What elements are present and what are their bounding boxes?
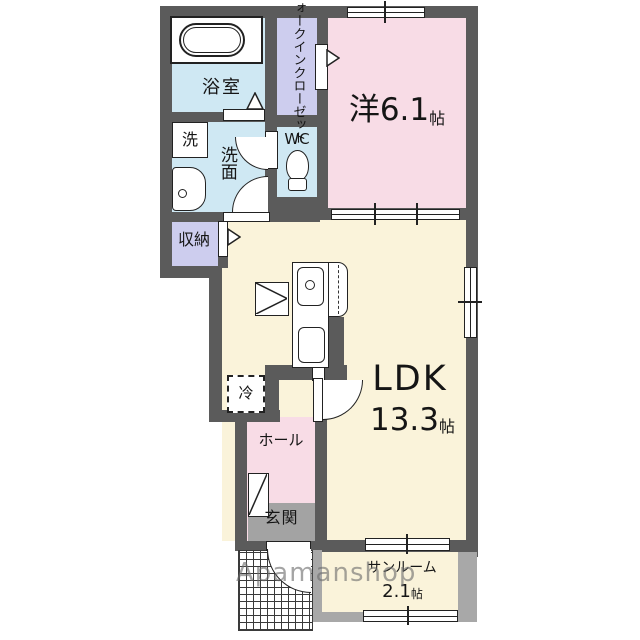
window-tick [384,1,386,23]
bathroom-label: 浴室 [186,76,258,100]
wall-storage-stub [218,256,228,268]
storage-entry-arrow-icon [227,228,241,246]
sliding-door-tick [374,203,376,225]
wall-kitchen-stub [328,317,344,367]
washroom-label: 洗面 [215,140,237,186]
refrigerator-space-icon: 冷 [227,375,265,413]
walk-in-closet-label: ウォークインクローゼット [279,16,317,115]
washbasin-icon [172,167,206,211]
window-tick [406,534,408,554]
wall-fridge-niche-right [265,365,279,416]
wall-wic-western [317,6,328,208]
hall-label: ホール [247,431,315,451]
bathroom-sliding-door [223,109,265,121]
window-icon-sunroom-bottom [363,610,458,622]
wall-hall-right [315,417,327,551]
washroom-door-jamb [223,212,270,222]
toilet-tank-icon [288,178,307,191]
western-room-label: 洋6.1帖 [328,90,466,130]
storage-label: 収納 [170,230,218,250]
sliding-door-tick [416,203,418,225]
dining-table-icon [255,282,289,316]
wall-wc-bottom [270,197,320,222]
ldk-door-leaf [313,378,323,422]
ldk-area-label: 13.3帖 [355,402,470,438]
bathtub-icon [170,16,263,64]
counter-icon [328,262,348,317]
window-tick [458,301,482,303]
stove-icon [298,327,325,363]
window-tick [407,606,409,625]
watermark: Apamanshop [236,558,416,588]
wc-label: WC [277,131,317,149]
sliding-door-icon [331,209,460,220]
floor-plan: 洗 冷 浴室 ウォークインクローゼット 洗面 WC 洋6.1帖 収納 LDK 1… [0,0,640,640]
washing-machine-space-icon: 洗 [172,122,208,158]
wall-hall-left [235,410,247,551]
entrance-label: 玄関 [248,508,315,528]
window-icon-western-top [347,7,425,18]
wic-entry-arrow-icon [326,49,340,67]
faucet-icon [305,280,315,290]
toilet-icon [286,150,309,181]
wall-ldk-left [209,266,222,417]
ldk-label: LDK [360,360,460,398]
